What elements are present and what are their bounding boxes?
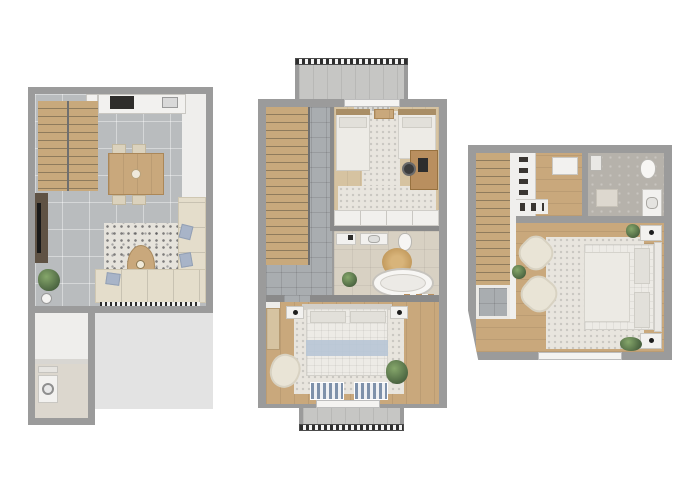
table-decor [131, 169, 141, 179]
bedroom-floor-corner [476, 319, 516, 352]
bath-plant [342, 272, 357, 287]
sofa-pillow [179, 252, 193, 268]
twin-bed-right-pillow [402, 117, 432, 128]
stair-rail [308, 107, 310, 265]
twin-bed-left-headboard [336, 109, 370, 115]
washer-drum [42, 383, 54, 395]
bath-mat [596, 189, 618, 207]
door-opening [284, 295, 310, 302]
vanity-basin [646, 197, 658, 209]
kids-window [344, 99, 400, 107]
balcony-top-floor [299, 65, 404, 99]
paper-stand [41, 293, 52, 304]
entry-hall-floor [35, 313, 88, 359]
utility-shelf [38, 366, 58, 373]
balcony-top-railing [295, 58, 408, 65]
sofa-pillow [105, 272, 121, 286]
balcony-bottom-railing [299, 424, 404, 431]
dresser [552, 157, 578, 175]
plant-left [512, 265, 526, 279]
staircase [476, 153, 510, 285]
bed-blanket [584, 252, 630, 322]
floor-plan-sheet [0, 0, 700, 494]
bedroom-plant [386, 360, 408, 384]
plant-bottom-right [620, 337, 642, 351]
twin-bed-left-pillow [339, 117, 367, 128]
interior-wall [516, 216, 664, 223]
between-beds-table [374, 109, 394, 119]
plan-middle-floor [258, 58, 447, 432]
balcony-bottom-floor [303, 408, 400, 424]
plant-top-right [626, 224, 640, 238]
stair-landing [476, 285, 510, 319]
wardrobe-band [334, 210, 439, 226]
plan-ground-floor [28, 87, 213, 425]
plant [38, 269, 60, 291]
toilet [640, 159, 656, 179]
patio-area [95, 313, 213, 409]
tv-screen [37, 203, 41, 253]
bed-pillow [634, 248, 650, 284]
plan-top-floor [468, 145, 672, 360]
bath-vanity [336, 233, 356, 245]
rug-fringe [100, 302, 200, 306]
dining-chair [112, 195, 126, 205]
bed-pillow [310, 311, 346, 323]
striped-mat-left [310, 382, 344, 400]
bed-pillow [634, 292, 650, 328]
bed-throw [306, 340, 388, 356]
lamp [649, 230, 654, 235]
cooktop [110, 96, 134, 109]
bath-sink-basin [368, 235, 380, 243]
wardrobe-panel [266, 308, 280, 350]
dining-chair [132, 195, 146, 205]
desk-chair [402, 162, 416, 176]
staircase [266, 107, 310, 265]
shower-tray [590, 155, 602, 171]
lamp [397, 310, 402, 315]
bedroom-window [538, 352, 622, 360]
vanity-accessory [348, 235, 353, 240]
balcony-door [316, 400, 380, 408]
coffee-table-decor [136, 260, 145, 269]
twin-bed-right-headboard [398, 109, 436, 115]
bed-pillow [350, 311, 386, 323]
lamp [649, 338, 654, 343]
laptop [418, 158, 428, 172]
lamp [293, 310, 298, 315]
headboard [654, 242, 662, 332]
kitchen-sink [162, 97, 178, 108]
stair-rail [67, 101, 69, 191]
striped-mat-right [354, 382, 388, 400]
hanging-clothes [520, 203, 544, 211]
bathtub-basin [380, 274, 426, 292]
